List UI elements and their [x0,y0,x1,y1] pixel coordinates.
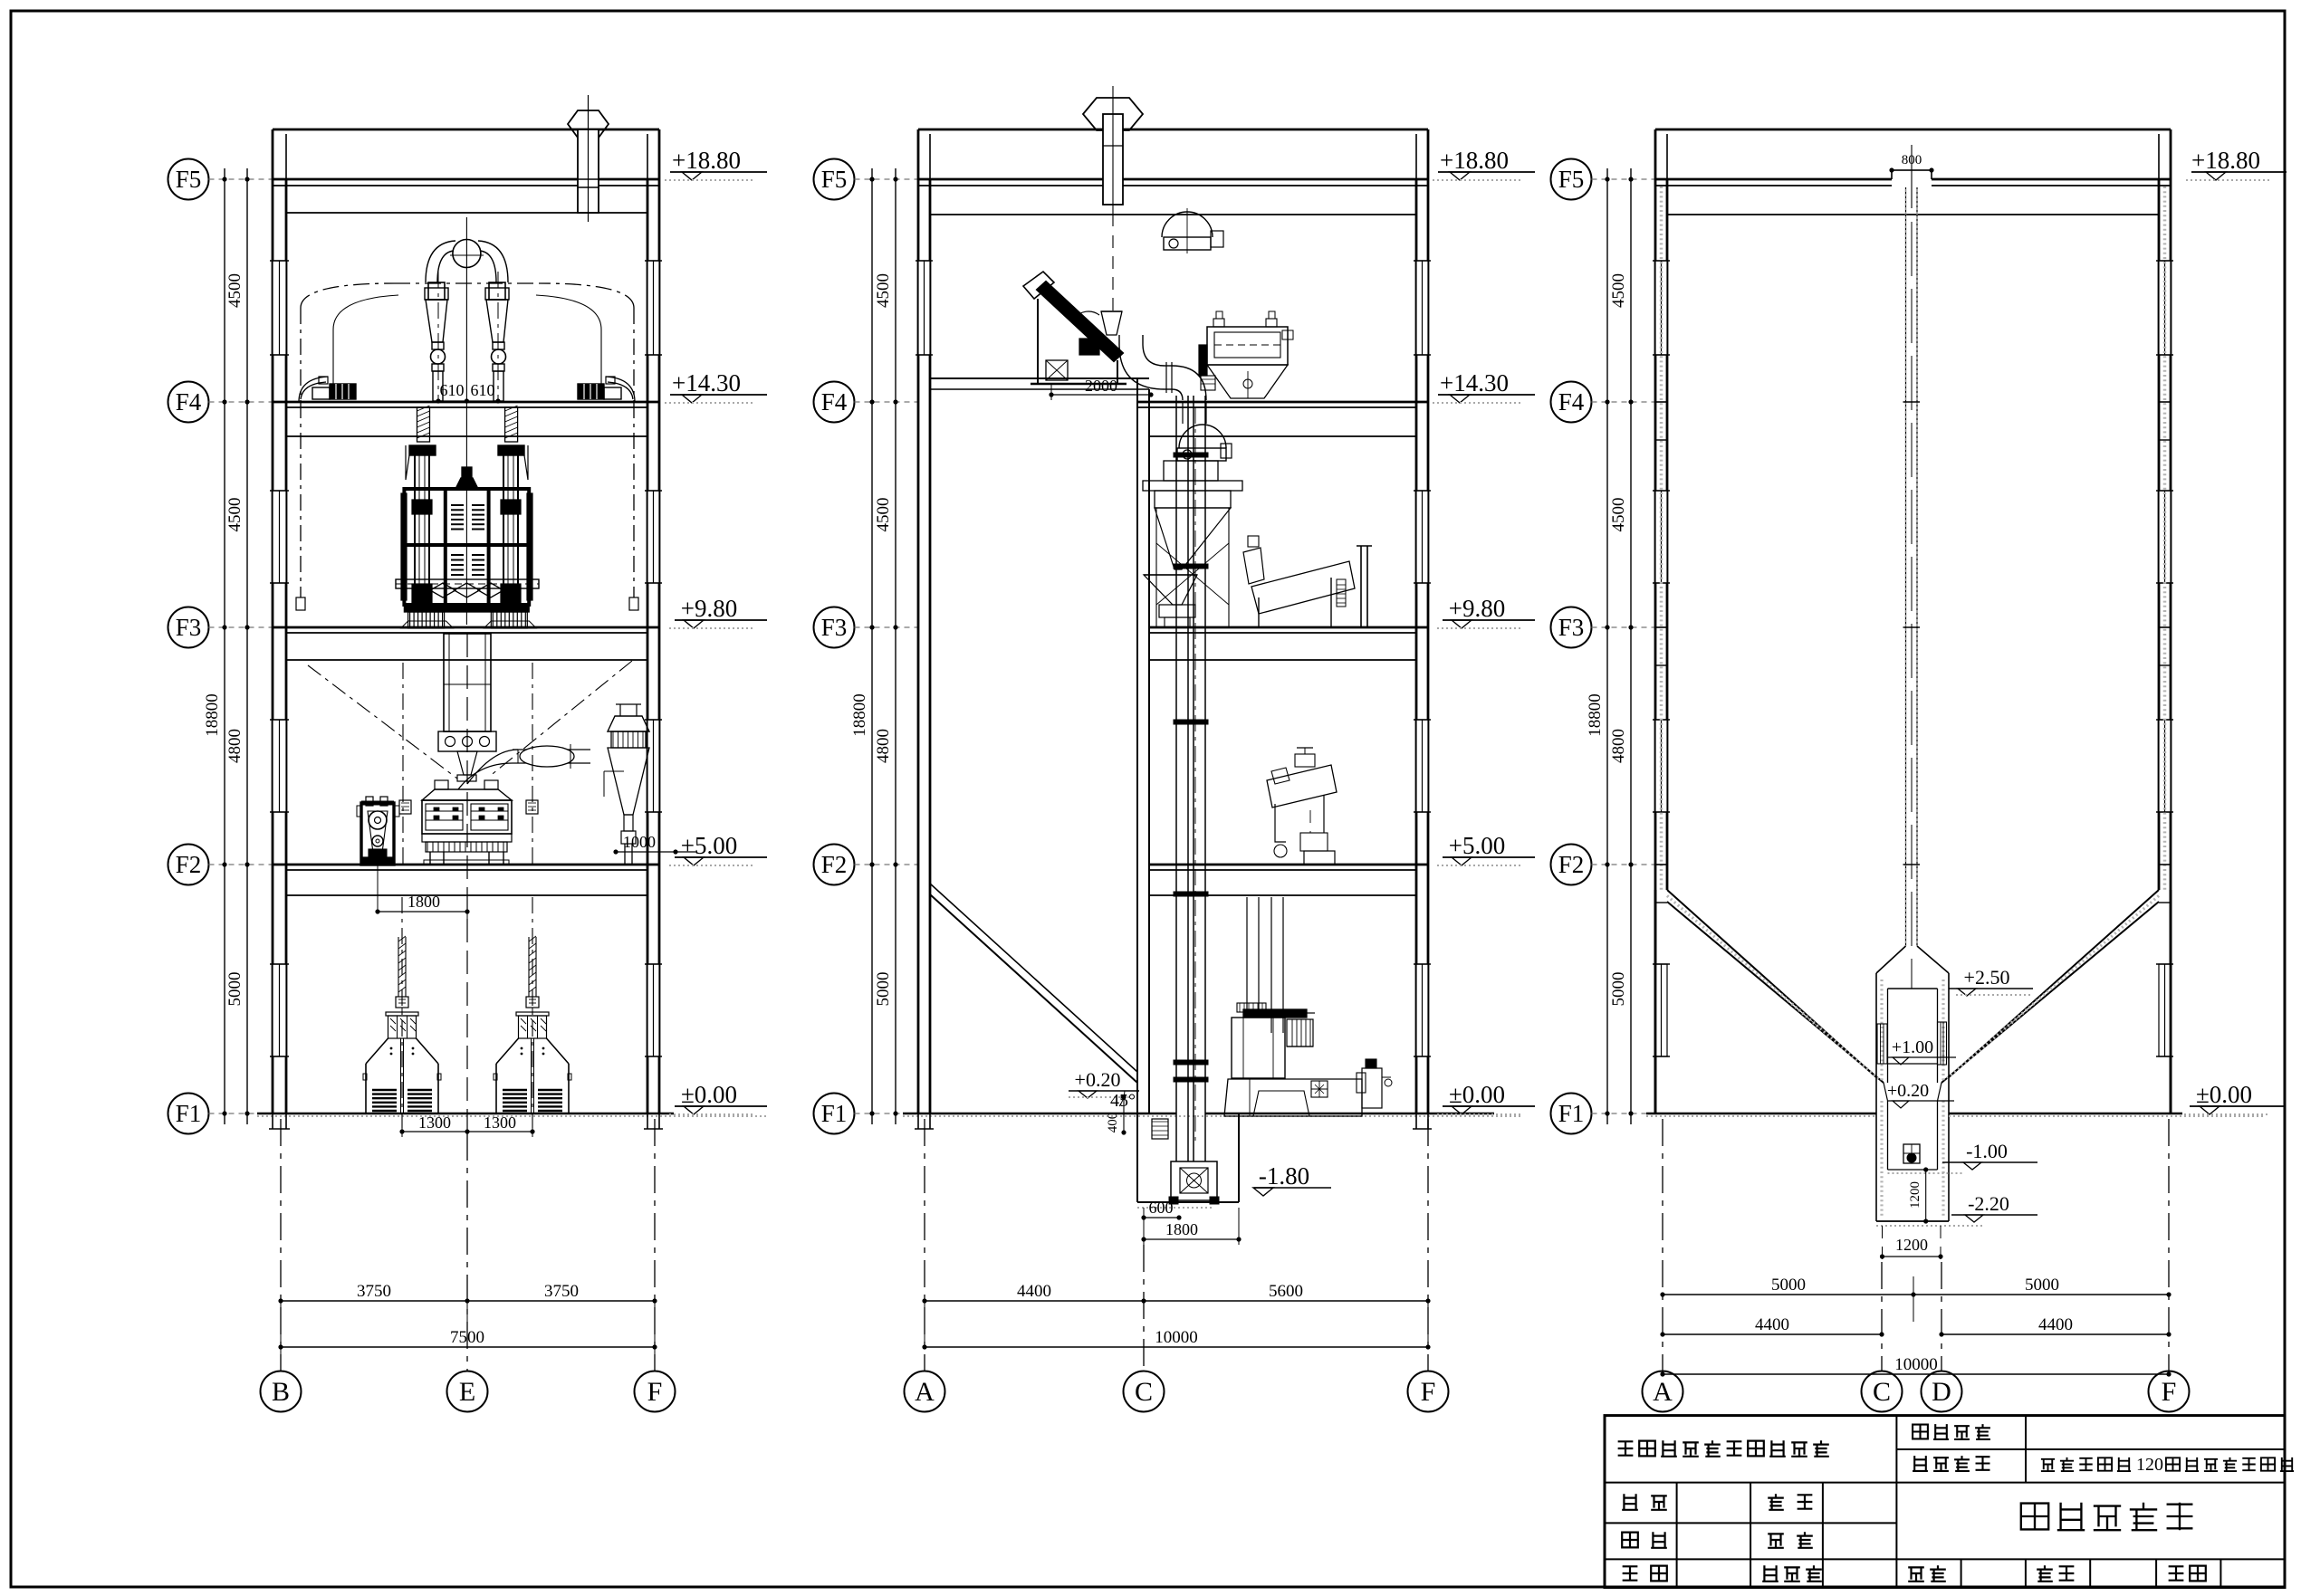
svg-text:F5: F5 [821,166,848,193]
svg-text:F: F [2162,1377,2177,1407]
svg-text:F: F [647,1377,663,1407]
svg-text:5600: 5600 [1269,1282,1303,1301]
svg-text:+14.30: +14.30 [672,369,741,397]
svg-text:F2: F2 [821,851,848,878]
svg-text:±0.00: ±0.00 [1449,1081,1505,1108]
svg-text:610: 610 [471,381,495,399]
svg-text:C: C [1135,1377,1153,1407]
svg-text:120: 120 [2136,1455,2163,1475]
svg-text:18800: 18800 [1586,693,1605,737]
svg-text:610: 610 [440,381,465,399]
svg-text:+5.00: +5.00 [681,832,737,859]
svg-text:D: D [1932,1377,1951,1407]
svg-text:4500: 4500 [1609,498,1628,532]
svg-text:18800: 18800 [203,693,222,737]
svg-text:4500: 4500 [1609,273,1628,308]
svg-text:±0.00: ±0.00 [2196,1081,2252,1108]
svg-text:5000: 5000 [225,972,244,1007]
svg-text:10000: 10000 [1155,1328,1198,1347]
svg-text:F3: F3 [1558,614,1585,641]
svg-text:C: C [1873,1377,1891,1407]
svg-text:3750: 3750 [544,1282,579,1301]
svg-text:F5: F5 [176,166,202,193]
svg-text:4400: 4400 [1755,1315,1789,1334]
svg-text:4500: 4500 [874,273,893,308]
svg-text:F4: F4 [1558,388,1585,416]
svg-text:2000: 2000 [1085,377,1117,395]
svg-text:5000: 5000 [2025,1276,2059,1295]
svg-text:+1.00: +1.00 [1892,1037,1933,1057]
svg-text:4500: 4500 [225,498,244,532]
svg-text:+18.80: +18.80 [2191,147,2260,174]
svg-text:+14.30: +14.30 [1440,369,1509,397]
svg-text:4800: 4800 [874,729,893,763]
svg-text:1000: 1000 [623,833,656,851]
svg-text:1800: 1800 [1165,1220,1198,1238]
svg-text:-1.80: -1.80 [1259,1162,1309,1190]
svg-text:A: A [1653,1377,1673,1407]
svg-text:E: E [459,1377,475,1407]
svg-text:+0.20: +0.20 [1887,1081,1929,1101]
svg-text:1800: 1800 [407,893,440,911]
svg-text:+9.80: +9.80 [1449,595,1505,622]
svg-text:F4: F4 [176,388,202,416]
svg-text:5000: 5000 [1609,972,1628,1007]
svg-text:18800: 18800 [850,693,869,737]
svg-text:F1: F1 [821,1100,848,1127]
svg-text:F3: F3 [176,614,202,641]
svg-text:400: 400 [1106,1113,1120,1133]
svg-text:10000: 10000 [1894,1355,1938,1374]
svg-text:4800: 4800 [225,729,244,763]
svg-text:5000: 5000 [1771,1276,1806,1295]
svg-text:-2.20: -2.20 [1968,1192,2009,1215]
svg-text:1200: 1200 [1908,1181,1922,1209]
svg-text:F4: F4 [821,388,848,416]
svg-text:F2: F2 [176,851,202,878]
svg-text:4500: 4500 [874,498,893,532]
svg-text:3750: 3750 [357,1282,391,1301]
svg-text:4800: 4800 [1609,729,1628,763]
svg-text:1300: 1300 [418,1113,451,1132]
svg-text:1300: 1300 [484,1113,516,1132]
svg-text:+2.50: +2.50 [1964,966,2010,989]
svg-text:4500: 4500 [225,273,244,308]
svg-text:5000: 5000 [874,972,893,1007]
svg-text:A: A [915,1377,935,1407]
svg-text:+18.80: +18.80 [672,147,741,174]
svg-text:4400: 4400 [2038,1315,2073,1334]
svg-text:F5: F5 [1558,166,1585,193]
svg-text:+18.80: +18.80 [1440,147,1509,174]
svg-text:F3: F3 [821,614,848,641]
svg-text:-1.00: -1.00 [1966,1140,2008,1162]
svg-text:+0.20: +0.20 [1075,1068,1121,1091]
svg-text:F2: F2 [1558,851,1585,878]
svg-text:B: B [272,1377,290,1407]
svg-text:F1: F1 [1558,1100,1585,1127]
svg-text:1200: 1200 [1895,1236,1928,1254]
svg-text:+5.00: +5.00 [1449,832,1505,859]
svg-text:±0.00: ±0.00 [681,1081,737,1108]
svg-text:4400: 4400 [1017,1282,1051,1301]
svg-text:F1: F1 [176,1100,202,1127]
svg-text:F: F [1421,1377,1436,1407]
svg-text:+9.80: +9.80 [681,595,737,622]
